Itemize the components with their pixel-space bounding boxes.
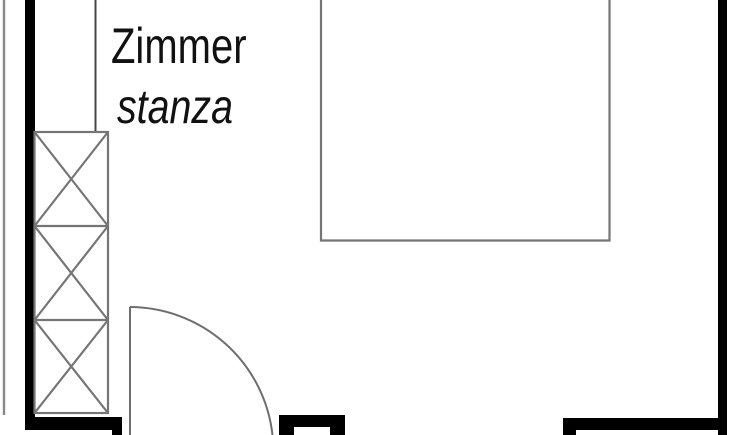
room-label-italian: stanza [117,84,258,132]
wall-right [718,0,727,435]
bed-outline [321,0,610,241]
door-swing-arc [130,307,273,435]
wall-bottom-left [25,417,122,435]
room-label-italian-text: stanza [117,84,233,132]
wardrobe-cell-cross [35,320,109,413]
room-label-german: Zimmer [111,21,280,71]
door-symbol [130,307,273,435]
wall-pier-bottom [279,415,345,435]
wall-bottom-right [563,418,720,435]
room-label-german-text: Zimmer [111,21,247,71]
wardrobe-cell-cross [35,132,109,226]
wardrobe-cell-cross [35,226,109,320]
outer-edge-line [3,0,5,415]
wardrobe-symbol [35,132,109,413]
floor-plan: Zimmer stanza [0,0,754,435]
